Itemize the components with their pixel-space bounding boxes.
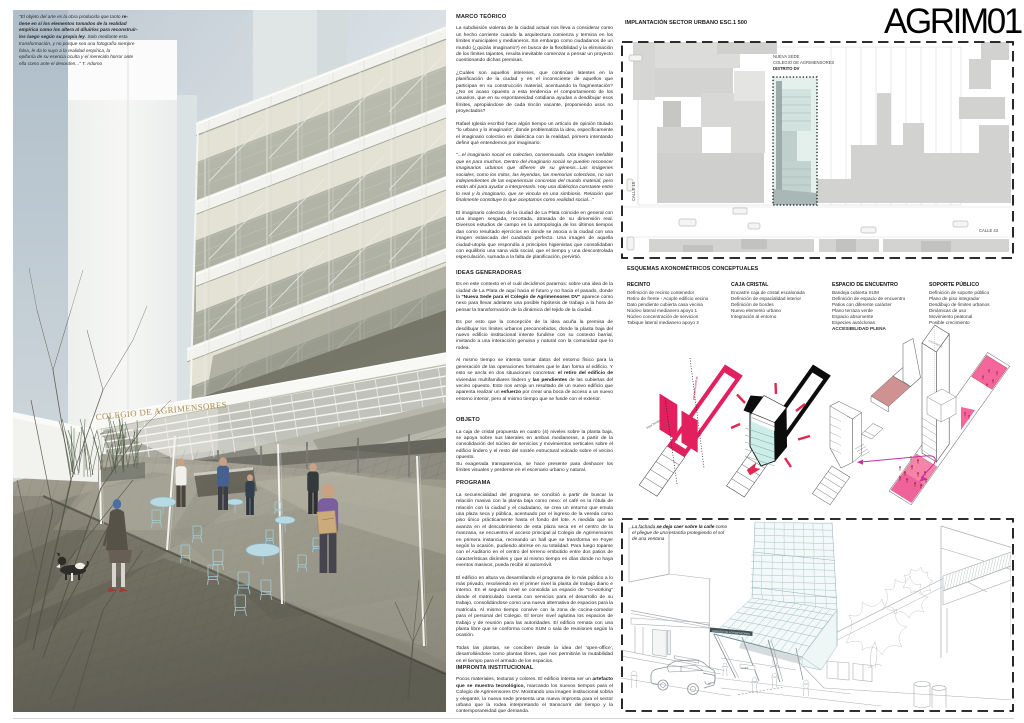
svg-text:linea frente: linea frente <box>646 419 661 430</box>
